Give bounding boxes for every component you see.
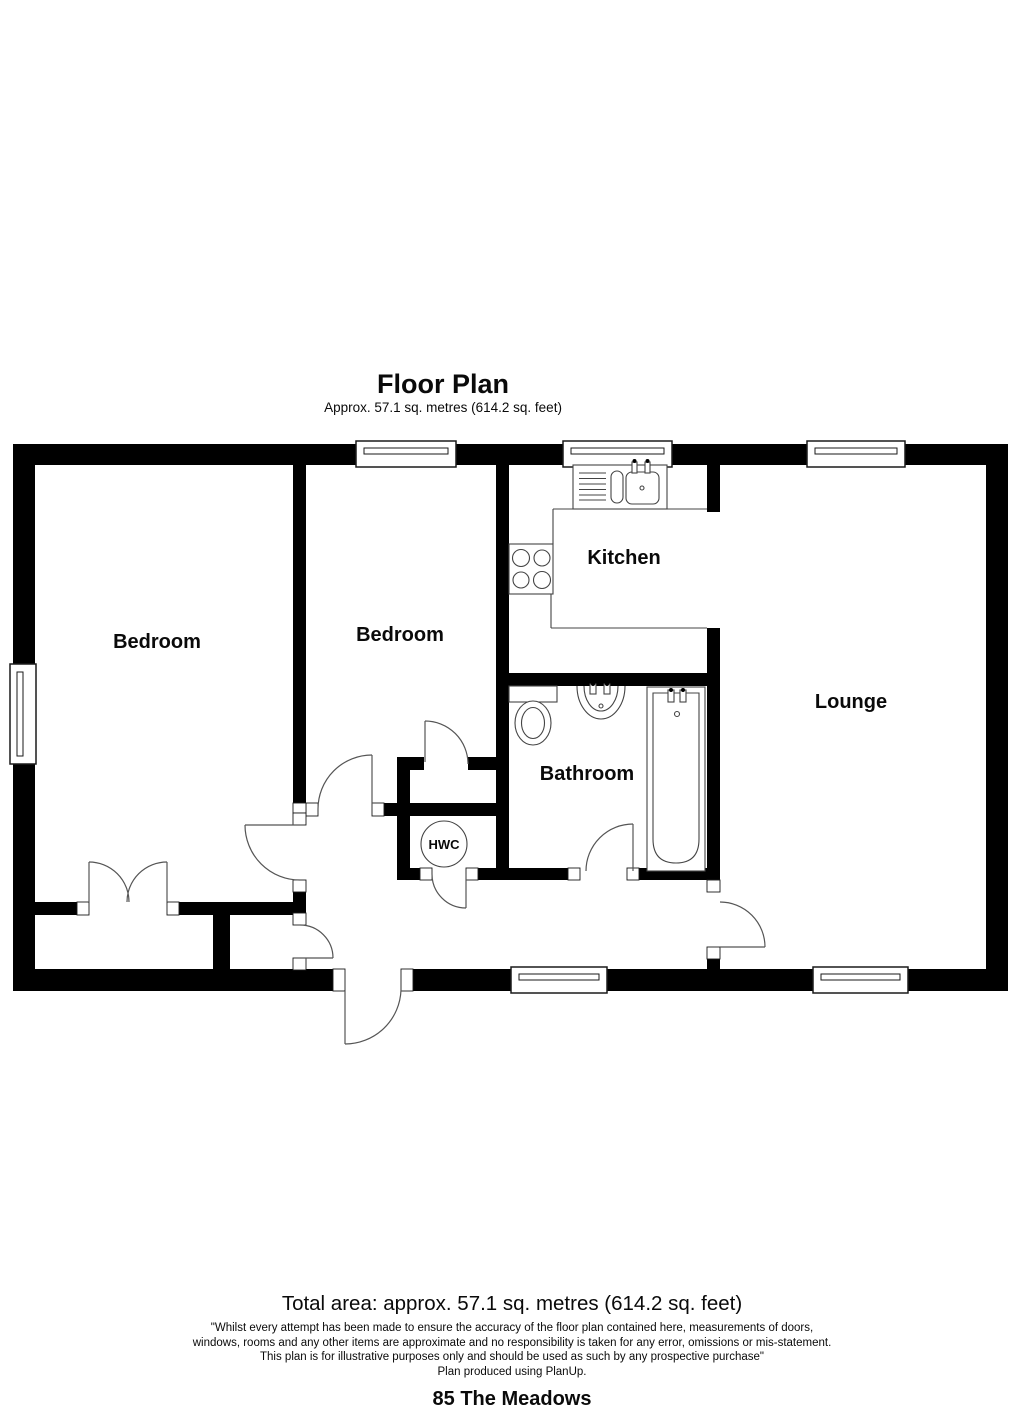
disclaimer-line: Plan produced using PlanUp. [0, 1365, 1024, 1380]
sink-drainboard [611, 471, 623, 503]
bedroom1-label: Bedroom [113, 631, 201, 653]
toilet [509, 686, 557, 745]
floor-plan-page: Floor Plan Approx. 57.1 sq. metres (614.… [0, 0, 1024, 1409]
front-door-opening [345, 968, 401, 992]
bath-tub [647, 687, 705, 871]
wall-bedroom1-bottom-east [179, 902, 306, 915]
wall-bedroom2-kitchen [496, 465, 509, 880]
door-bedroom2-closet [425, 721, 468, 764]
basin [577, 682, 625, 719]
door-hall-cupboard [300, 925, 333, 958]
outer-walls [13, 444, 1008, 991]
total-area-text: Total area: approx. 57.1 sq. metres (614… [0, 1292, 1024, 1316]
lounge-label: Lounge [815, 691, 887, 713]
disclaimer-line: This plan is for illustrative purposes o… [0, 1350, 1024, 1365]
wall-bedroom1-bottom-west [35, 902, 77, 915]
wall-hwc-left [397, 757, 410, 880]
property-address: 85 The Meadows [0, 1388, 1024, 1409]
window-lounge-bottom [813, 967, 908, 993]
kitchen-fixtures [509, 459, 707, 628]
wall-bedroom-divider [293, 465, 306, 803]
window-hall-bottom [511, 967, 607, 993]
window-kitchen-top [563, 441, 672, 467]
door-bedroom1 [245, 825, 300, 880]
floor-plan-drawing: HWC Bedroom Bedroom Kitchen Lounge Bathr… [0, 0, 1024, 1409]
wall-kitchen-lounge-stub [707, 444, 720, 512]
window-bedroom2-top [356, 441, 456, 467]
door-front-entrance [345, 990, 401, 1044]
bedroom2-label: Bedroom [356, 624, 444, 646]
windows [10, 441, 908, 993]
door-lounge [720, 902, 765, 947]
kitchen-sink-bowl [626, 472, 659, 504]
door-hwc [432, 874, 466, 908]
hwc-cupboard: HWC [421, 821, 467, 867]
wall-wardrobe-divider [213, 902, 230, 969]
door-wardrobe-double [89, 862, 167, 902]
door-bathroom [586, 824, 633, 871]
bathroom-label: Bathroom [540, 763, 634, 785]
hwc-label: HWC [428, 837, 460, 852]
window-lounge-top [807, 441, 905, 467]
wall-closet-top-east [468, 757, 496, 770]
wall-bathroom-lounge [707, 628, 720, 884]
wall-hwc-bath-bottom [478, 868, 568, 880]
kitchen-label: Kitchen [587, 547, 660, 569]
disclaimer-line: "Whilst every attempt has been made to e… [0, 1321, 1024, 1336]
disclaimer-line: windows, rooms and any other items are a… [0, 1336, 1024, 1351]
disclaimer-text: "Whilst every attempt has been made to e… [0, 1321, 1024, 1379]
door-bedroom2 [318, 755, 372, 809]
window-bedroom1-left [10, 664, 36, 764]
